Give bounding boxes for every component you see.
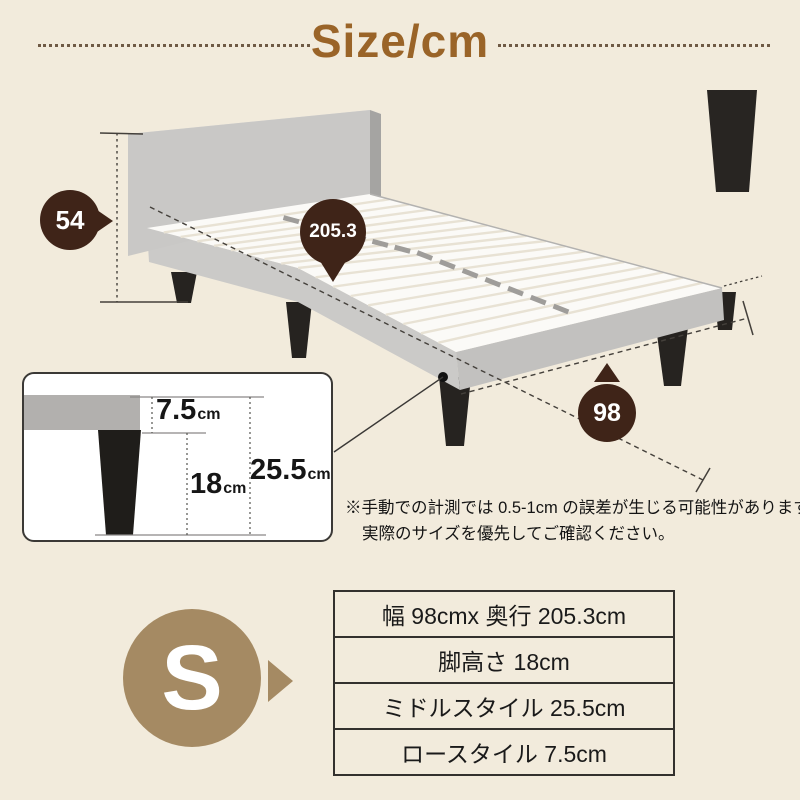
height-badge: 54	[40, 190, 100, 250]
height-badge-pointer-icon	[97, 210, 113, 232]
middle-style-unit: cm	[307, 466, 330, 483]
table-row: ミドルスタイル 25.5cm	[335, 684, 673, 730]
callout-line	[334, 377, 443, 452]
middle-style-value: 25.5	[250, 454, 306, 486]
height-tick-top	[100, 133, 143, 134]
low-style-unit: cm	[197, 406, 220, 423]
foot-edge-extension-line	[724, 276, 762, 286]
measurement-note: ※手動での計測では 0.5-1cm の誤差が生じる可能性があります。 実際のサイ…	[345, 496, 795, 547]
detail-frame-rail	[24, 395, 140, 430]
size-badge: S	[123, 609, 261, 747]
note-line-1: ※手動での計測では 0.5-1cm の誤差が生じる可能性があります。	[345, 496, 795, 522]
table-row: 脚高さ 18cm	[335, 638, 673, 684]
length-end-tick	[696, 468, 710, 492]
table-row: ロースタイル 7.5cm	[335, 730, 673, 774]
leg-height-value: 18	[190, 468, 222, 500]
bed-leg	[171, 272, 197, 303]
width-badge-pointer-icon	[594, 363, 620, 382]
size-badge-pointer-icon	[268, 660, 293, 702]
length-badge-pointer-icon	[320, 261, 346, 282]
spare-leg-shape	[707, 90, 757, 192]
leg-height-label: 18cm	[190, 468, 246, 501]
middle-style-height-label: 25.5cm	[250, 454, 331, 487]
bed-leg	[286, 302, 312, 358]
table-row: 幅 98cmx 奥行 205.3cm	[335, 592, 673, 638]
width-end-tick	[743, 301, 753, 335]
headboard-side-edge	[370, 110, 381, 201]
spec-table: 幅 98cmx 奥行 205.3cm 脚高さ 18cm ミドルスタイル 25.5…	[333, 590, 675, 776]
size-infographic: Size/cm	[0, 0, 800, 800]
note-line-2: 実際のサイズを優先してご確認ください。	[345, 522, 795, 548]
width-badge: 98	[578, 384, 636, 442]
detail-leg	[98, 430, 141, 535]
leg-height-unit: cm	[223, 480, 246, 497]
leg-detail-box: 7.5cm 18cm 25.5cm	[22, 372, 333, 542]
low-style-height-label: 7.5cm	[156, 394, 220, 427]
low-style-value: 7.5	[156, 394, 196, 426]
length-badge: 205.3	[300, 199, 366, 265]
